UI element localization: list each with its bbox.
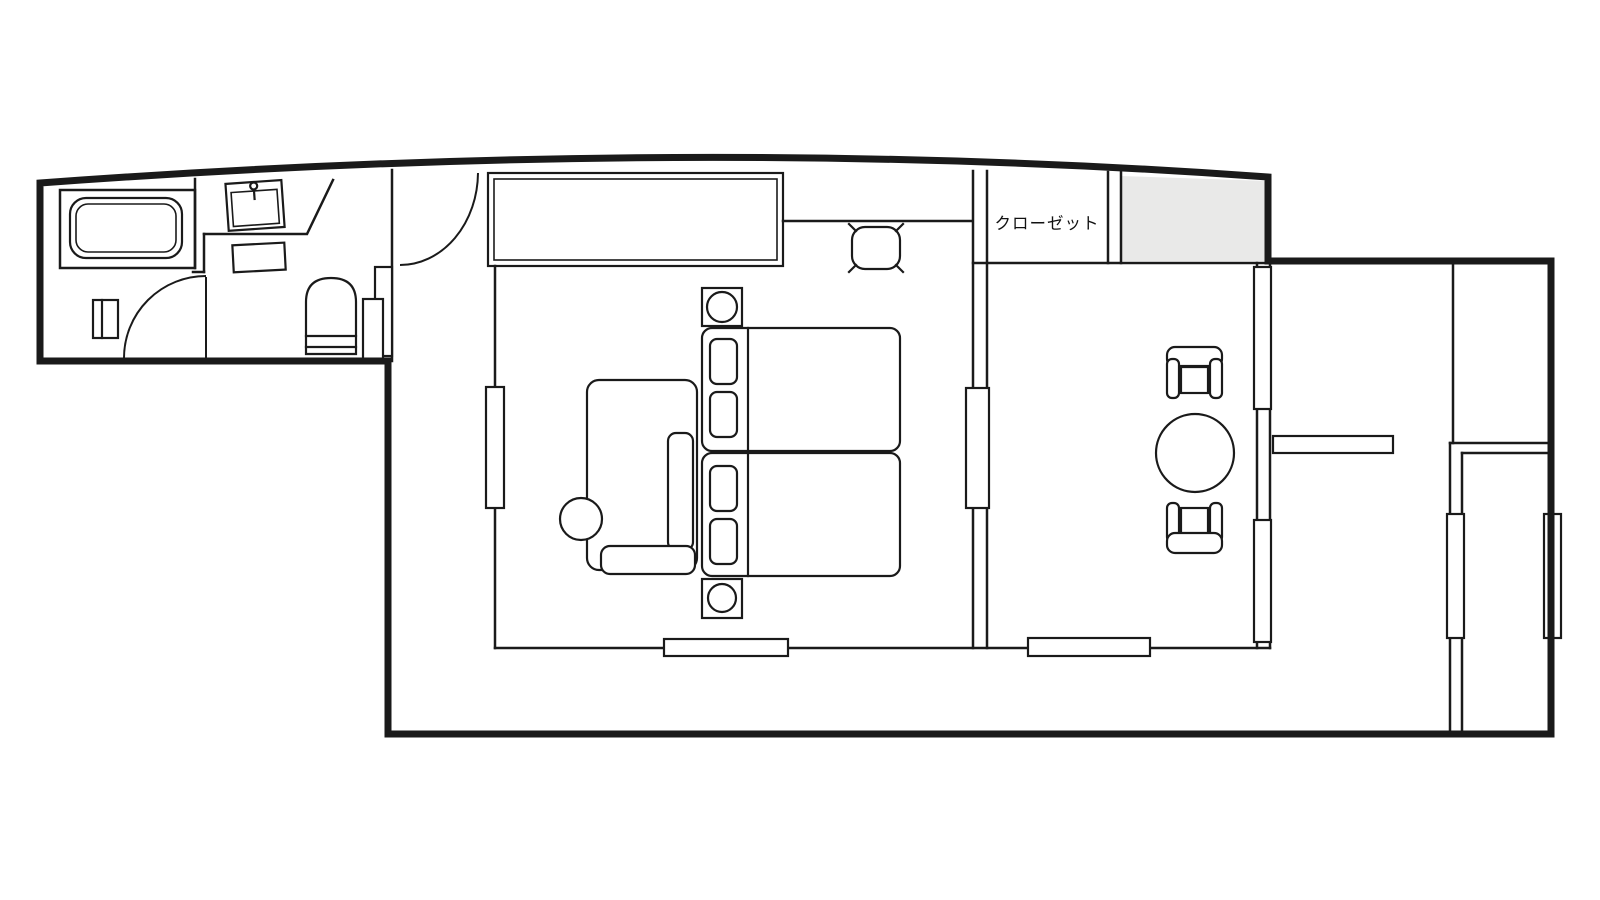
side-table-icon bbox=[560, 498, 602, 540]
sofa-seat-front bbox=[601, 546, 695, 574]
toilet-icon bbox=[306, 278, 356, 354]
vanity-shelf-icon bbox=[232, 243, 285, 273]
laundry-space-icon bbox=[93, 300, 118, 338]
bedroom-south-door-icon bbox=[664, 639, 788, 656]
floor-cushion-icon bbox=[852, 227, 900, 269]
living-window-lower-icon bbox=[1254, 520, 1271, 642]
living-room bbox=[1156, 347, 1234, 553]
entrance-swing-door-icon bbox=[400, 173, 478, 265]
faucet-knob-icon bbox=[250, 182, 257, 189]
cushion-corner bbox=[896, 265, 903, 272]
storage-window-west-icon bbox=[1447, 514, 1464, 638]
pillow-icon bbox=[710, 339, 737, 384]
washroom-swing-door-icon bbox=[124, 276, 206, 358]
cushion-corner bbox=[849, 224, 856, 231]
openings bbox=[363, 267, 1561, 656]
living-south-door-icon bbox=[1028, 638, 1150, 656]
bathroom bbox=[70, 180, 356, 359]
lamp-icon bbox=[708, 584, 736, 612]
counter-shelf-icon bbox=[1273, 436, 1393, 453]
bedroom bbox=[488, 173, 903, 618]
armchair-arm bbox=[1210, 359, 1222, 398]
wardrobe-icon bbox=[488, 173, 783, 266]
armchair-arm bbox=[1167, 359, 1179, 398]
closet-label: クローゼット bbox=[995, 214, 1100, 233]
pillow-icon bbox=[710, 519, 737, 564]
cushion-corner bbox=[896, 224, 903, 231]
fusuma-sliding-door-icon bbox=[966, 388, 989, 508]
floor-plan-canvas: クローゼット bbox=[0, 0, 1600, 900]
bed-lower-icon bbox=[702, 453, 900, 576]
living-window-upper-icon bbox=[1254, 267, 1271, 409]
washbasin-icon bbox=[225, 180, 284, 231]
pillow-icon bbox=[710, 466, 737, 511]
hall-sliding-door-icon bbox=[363, 299, 383, 362]
armchair-seat bbox=[1181, 508, 1208, 535]
bed-upper-icon bbox=[702, 328, 900, 451]
shaft-area bbox=[1121, 176, 1268, 261]
sofa-seat-arm bbox=[668, 433, 693, 550]
bathtub-icon bbox=[70, 198, 182, 258]
armchair-seat bbox=[1181, 366, 1208, 393]
lamp-icon bbox=[707, 292, 737, 322]
cushion-corner bbox=[849, 265, 856, 272]
pillow-icon bbox=[710, 392, 737, 437]
floor-plan: クローゼット bbox=[0, 0, 1600, 900]
round-table-icon bbox=[1156, 414, 1234, 492]
bedroom-window-icon bbox=[486, 387, 504, 508]
wardrobe-inner bbox=[494, 179, 777, 260]
sink-nook-wall bbox=[204, 180, 333, 234]
armchair-back bbox=[1167, 533, 1222, 553]
bathtub-inner bbox=[76, 204, 176, 252]
